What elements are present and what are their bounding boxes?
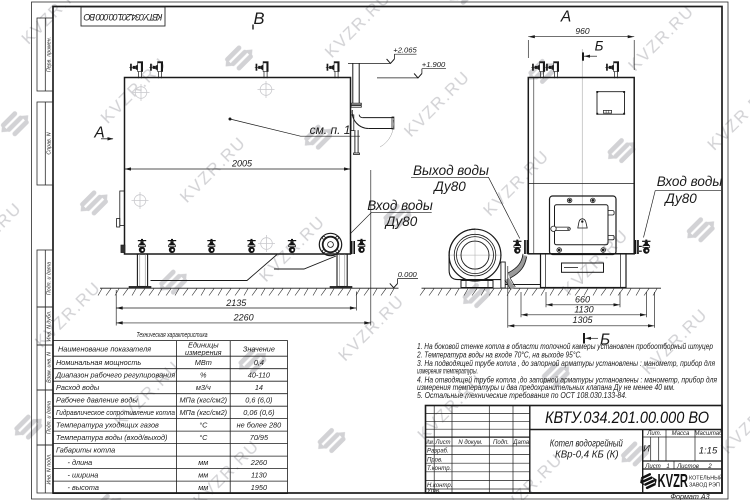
svg-text:0,06 (0,6): 0,06 (0,6) xyxy=(243,408,274,417)
svg-text:N докум.: N докум. xyxy=(458,440,482,446)
svg-text:Инв. N подл.: Инв. N подл. xyxy=(47,454,53,485)
svg-text:Перв. примен.: Перв. примен. xyxy=(47,37,53,72)
svg-text:960: 960 xyxy=(575,26,589,36)
svg-text:МПа (кгс/см2): МПа (кгс/см2) xyxy=(179,395,227,404)
svg-text:Вход воды: Вход воды xyxy=(657,174,723,189)
svg-text:Ду80: Ду80 xyxy=(384,214,418,229)
svg-text:МПа (кгс/см2): МПа (кгс/см2) xyxy=(179,408,227,417)
svg-text:Справ. N: Справ. N xyxy=(47,132,53,154)
svg-text:КВТУ.034.201.00.000 ВО: КВТУ.034.201.00.000 ВО xyxy=(545,408,709,427)
svg-text:Техническая характеристика: Техническая характеристика xyxy=(137,330,208,339)
svg-text:Наименование показателя: Наименование показателя xyxy=(58,344,151,353)
svg-text:Ду80: Ду80 xyxy=(432,179,466,194)
svg-text:Диапазон рабочего регулировани: Диапазон рабочего регулирования xyxy=(55,370,175,379)
svg-text:м3/ч: м3/ч xyxy=(196,383,211,392)
svg-text:Выход воды: Выход воды xyxy=(413,163,489,178)
svg-text:0,4: 0,4 xyxy=(254,358,264,367)
svg-text:Ду80: Ду80 xyxy=(663,191,697,206)
svg-text:1305: 1305 xyxy=(572,315,593,325)
svg-text:Подп. и дата: Подп. и дата xyxy=(47,262,53,295)
svg-text:Вход воды: Вход воды xyxy=(367,198,433,213)
svg-text:Подп. и дата: Подп. и дата xyxy=(47,401,53,434)
svg-text:Масса: Масса xyxy=(672,431,690,437)
svg-text:1:15: 1:15 xyxy=(699,446,718,457)
svg-text:°С: °С xyxy=(199,420,208,429)
svg-text:Б: Б xyxy=(595,39,604,54)
svg-text:660: 660 xyxy=(575,295,590,305)
svg-text:мм: мм xyxy=(198,483,208,492)
svg-text:1950: 1950 xyxy=(251,483,267,492)
svg-text:KVZR: KVZR xyxy=(658,471,689,491)
svg-text:- длина: - длина xyxy=(68,458,93,467)
svg-text:КВр-0,4 КБ (К): КВр-0,4 КБ (К) xyxy=(555,449,619,461)
svg-text:Лит.: Лит. xyxy=(646,431,661,437)
svg-text:И: И xyxy=(643,444,650,455)
svg-text:40-110: 40-110 xyxy=(248,370,270,379)
svg-text:Рабочее давление воды: Рабочее давление воды xyxy=(56,395,138,404)
svg-text:В: В xyxy=(253,10,264,28)
svg-text:Масштаб: Масштаб xyxy=(694,431,723,437)
svg-text:+1.900: +1.900 xyxy=(422,60,446,69)
svg-text:Формат А3: Формат А3 xyxy=(670,492,709,500)
svg-text:Лист: Лист xyxy=(644,464,660,470)
svg-text:измерения температуры.: измерения температуры. xyxy=(417,367,478,376)
svg-text:Значение: Значение xyxy=(243,344,275,353)
svg-text:Изм.: Изм. xyxy=(426,440,434,446)
svg-text:2005: 2005 xyxy=(231,159,253,169)
svg-text:Разраб.: Разраб. xyxy=(427,449,449,455)
svg-text:А: А xyxy=(560,9,571,26)
svg-text:2260: 2260 xyxy=(250,458,267,467)
svg-text:Габариты котла: Габариты котла xyxy=(56,445,115,454)
svg-text:мм: мм xyxy=(198,458,208,467)
svg-text:Лист: Лист xyxy=(435,440,451,446)
svg-text:ЗАВОД РЭП: ЗАВОД РЭП xyxy=(689,483,720,489)
svg-text:Температура воды (вход/выход): Температура воды (вход/выход) xyxy=(56,433,167,442)
svg-text:Взам. инв. N: Взам. инв. N xyxy=(47,352,53,383)
svg-text:5. Остальные технические треб: 5. Остальные технические требования по О… xyxy=(417,391,627,400)
svg-text:+2.065: +2.065 xyxy=(393,46,417,55)
svg-text:2260: 2260 xyxy=(233,313,254,323)
svg-text:1130: 1130 xyxy=(251,470,267,479)
svg-text:мм: мм xyxy=(198,470,208,479)
svg-text:измерения: измерения xyxy=(185,348,222,357)
svg-text:2135: 2135 xyxy=(225,298,247,308)
svg-text:не более 280: не более 280 xyxy=(237,420,282,429)
svg-text:- высота: - высота xyxy=(68,483,99,492)
svg-text:Номинальная мощность: Номинальная мощность xyxy=(56,358,141,367)
svg-text:70/95: 70/95 xyxy=(250,433,269,442)
svg-text:КВТУ.034.201.00.000 ВО: КВТУ.034.201.00.000 ВО xyxy=(84,12,163,22)
svg-text:Пров.: Пров. xyxy=(427,457,443,463)
svg-text:МВт: МВт xyxy=(195,358,212,367)
svg-text:Утв.: Утв. xyxy=(426,489,441,495)
svg-text:0.000: 0.000 xyxy=(398,270,418,279)
svg-text:Температура уходящих газов: Температура уходящих газов xyxy=(56,420,159,429)
svg-text:Инв. N дубл.: Инв. N дубл. xyxy=(47,311,53,342)
svg-text:Дата: Дата xyxy=(512,440,529,446)
svg-text:14: 14 xyxy=(255,383,263,392)
svg-text:°С: °С xyxy=(199,433,208,442)
svg-text:Подп.: Подп. xyxy=(493,440,509,446)
svg-text:Гидравлическое сопротивление к: Гидравлическое сопротивление котла xyxy=(56,408,175,417)
svg-text:%: % xyxy=(200,370,207,379)
svg-text:0,6 (6,0): 0,6 (6,0) xyxy=(245,395,272,404)
svg-text:2: 2 xyxy=(707,464,712,470)
svg-text:КОТЕЛЬНЫЙ: КОТЕЛЬНЫЙ xyxy=(689,474,723,482)
svg-text:Т.контр.: Т.контр. xyxy=(427,466,451,472)
svg-text:Расход воды: Расход воды xyxy=(56,383,100,392)
svg-text:1: 1 xyxy=(666,464,669,470)
svg-text:Котел водогрейный: Котел водогрейный xyxy=(550,437,623,449)
svg-text:- ширина: - ширина xyxy=(68,470,99,479)
svg-text:Листов: Листов xyxy=(676,464,699,470)
svg-text:1130: 1130 xyxy=(574,305,593,315)
svg-text:см. п. 1: см. п. 1 xyxy=(310,123,351,137)
